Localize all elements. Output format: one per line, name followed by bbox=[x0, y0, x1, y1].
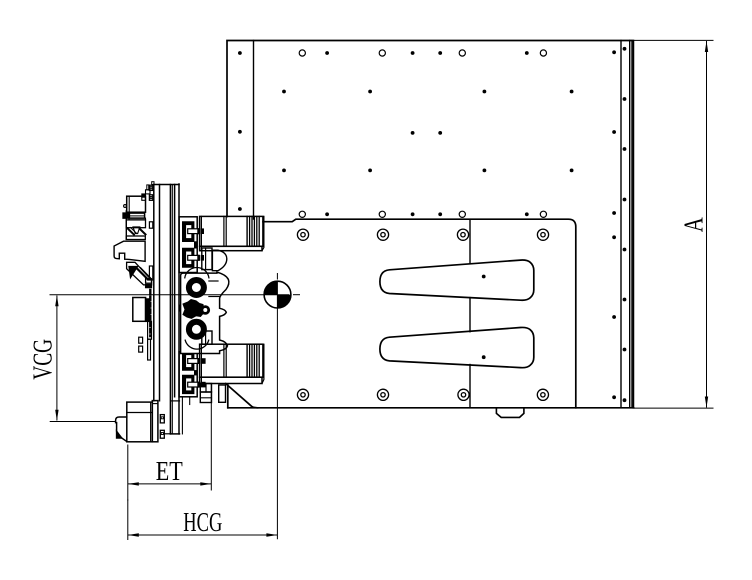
svg-text:A: A bbox=[679, 217, 709, 232]
svg-text:VCG: VCG bbox=[27, 339, 57, 380]
svg-text:ET: ET bbox=[156, 456, 183, 486]
svg-text:HCG: HCG bbox=[183, 507, 222, 537]
